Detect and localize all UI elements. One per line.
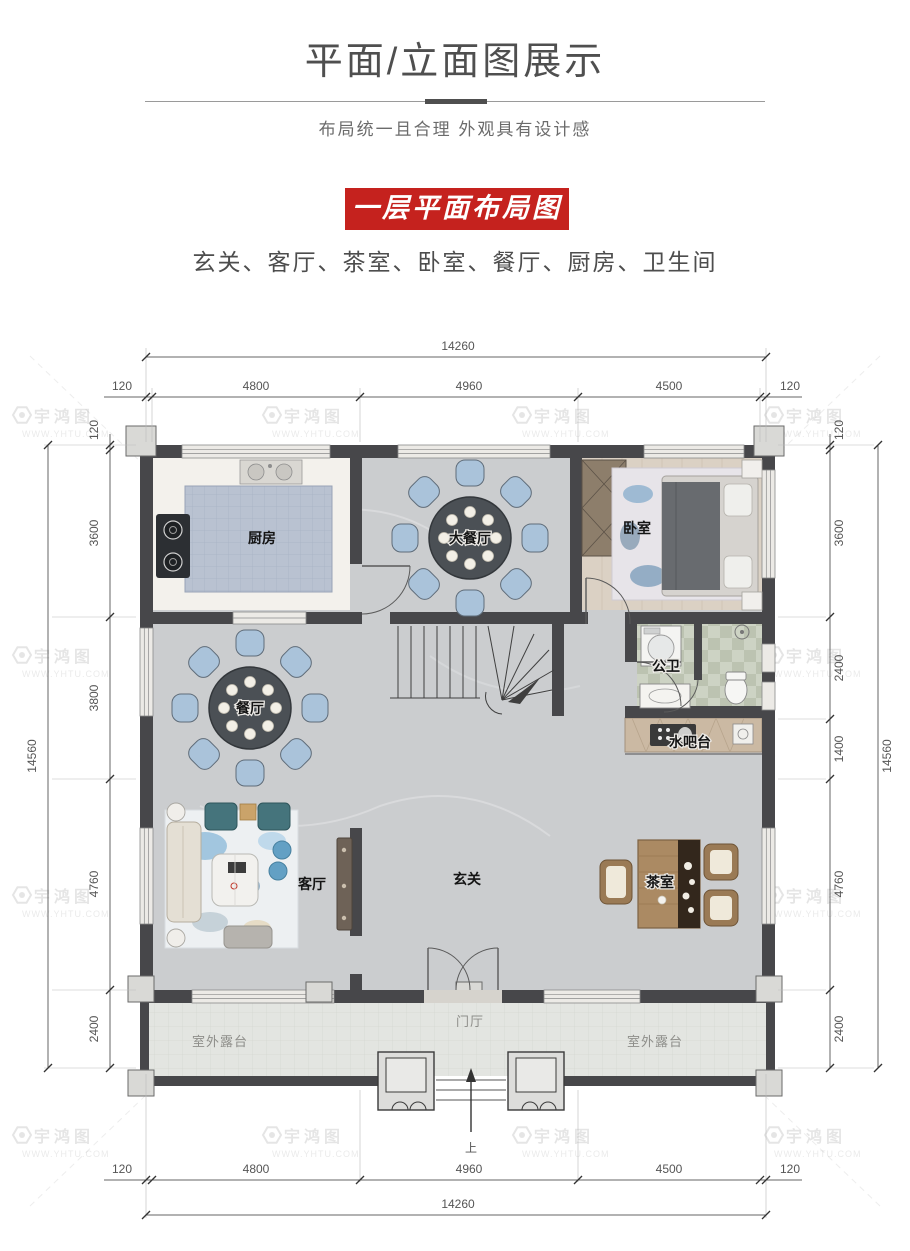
bath-label: 公卫 [652, 658, 680, 674]
section-badge: 一层平面布局图 [345, 188, 569, 230]
svg-text:4800: 4800 [243, 379, 270, 393]
svg-text:120: 120 [112, 379, 132, 393]
terrace-left-label: 室外露台 [192, 1034, 248, 1049]
tea-table-dark-strip [678, 840, 700, 928]
living-label: 客厅 [297, 876, 326, 892]
window-top-kitchen [182, 445, 330, 458]
room-list: 玄关、客厅、茶室、卧室、餐厅、厨房、卫生间 [0, 243, 910, 277]
page-title: 平面/立面图展示 [0, 30, 910, 85]
coffee-tray [228, 862, 246, 873]
water-bar-label: 水吧台 [669, 734, 711, 750]
pillow [724, 556, 752, 588]
svg-text:120: 120 [87, 420, 101, 440]
svg-text:120: 120 [780, 379, 800, 393]
window-top-dining [398, 445, 550, 458]
window-top-bedroom [644, 445, 744, 458]
dining-large-label: 大餐厅 [449, 530, 491, 546]
svg-text:3600: 3600 [87, 519, 101, 546]
svg-text:1400: 1400 [832, 735, 846, 762]
pouf [273, 841, 291, 859]
pillow [724, 484, 752, 516]
window-bottom-tea [544, 990, 640, 1003]
window-left-living [140, 828, 153, 924]
bedroom-label: 卧室 [623, 520, 651, 536]
window-left-dining [140, 628, 153, 716]
svg-text:120: 120 [832, 420, 846, 440]
foyer-label: 玄关 [453, 871, 481, 887]
ottoman [224, 926, 272, 948]
svg-text:4500: 4500 [656, 1162, 683, 1176]
svg-text:4760: 4760 [87, 870, 101, 897]
svg-text:120: 120 [112, 1162, 132, 1176]
dim-left-total: 14560 [25, 739, 39, 773]
svg-text:2400: 2400 [832, 654, 846, 681]
svg-text:2400: 2400 [832, 1015, 846, 1042]
window-right-bedroom [762, 470, 775, 578]
porch-column [378, 1052, 434, 1110]
terrace-right-label: 室外露台 [627, 1034, 683, 1049]
pouf [269, 862, 287, 880]
dim-top-total: 14260 [441, 339, 475, 353]
svg-text:4500: 4500 [656, 379, 683, 393]
floor-plan: 宇鸿图 WWW.YHTU.COM [0, 326, 910, 1246]
dining-label: 餐厅 [235, 700, 264, 716]
side-table [167, 929, 185, 947]
svg-text:3800: 3800 [87, 684, 101, 711]
window-right-tea [762, 828, 775, 924]
porch-label: 门厅 [456, 1014, 484, 1029]
nightstand [742, 460, 762, 478]
sofa [167, 822, 201, 922]
svg-text:4960: 4960 [456, 379, 483, 393]
page-subtitle: 布局统一且合理 外观具有设计感 [0, 115, 910, 140]
armchair [205, 803, 237, 830]
bar-sink [733, 724, 753, 744]
armchair [258, 803, 290, 830]
svg-text:4800: 4800 [243, 1162, 270, 1176]
side-tray [240, 804, 256, 820]
entry-threshold [424, 990, 502, 1003]
porch-column [508, 1052, 564, 1110]
bed-blanket [662, 482, 720, 590]
bath-sink [640, 684, 690, 708]
svg-text:120: 120 [780, 1162, 800, 1176]
kitchen-label: 厨房 [248, 530, 276, 546]
tea-label: 茶室 [645, 874, 674, 890]
nightstand [742, 592, 762, 610]
side-table [167, 803, 185, 821]
dim-right-total: 14560 [880, 739, 894, 773]
svg-text:4960: 4960 [456, 1162, 483, 1176]
title-divider [145, 101, 765, 102]
svg-text:4760: 4760 [832, 870, 846, 897]
svg-text:3600: 3600 [832, 519, 846, 546]
stairs-up-label: 上 [465, 1141, 477, 1155]
svg-text:2400: 2400 [87, 1015, 101, 1042]
dim-bottom-total: 14260 [441, 1197, 475, 1211]
